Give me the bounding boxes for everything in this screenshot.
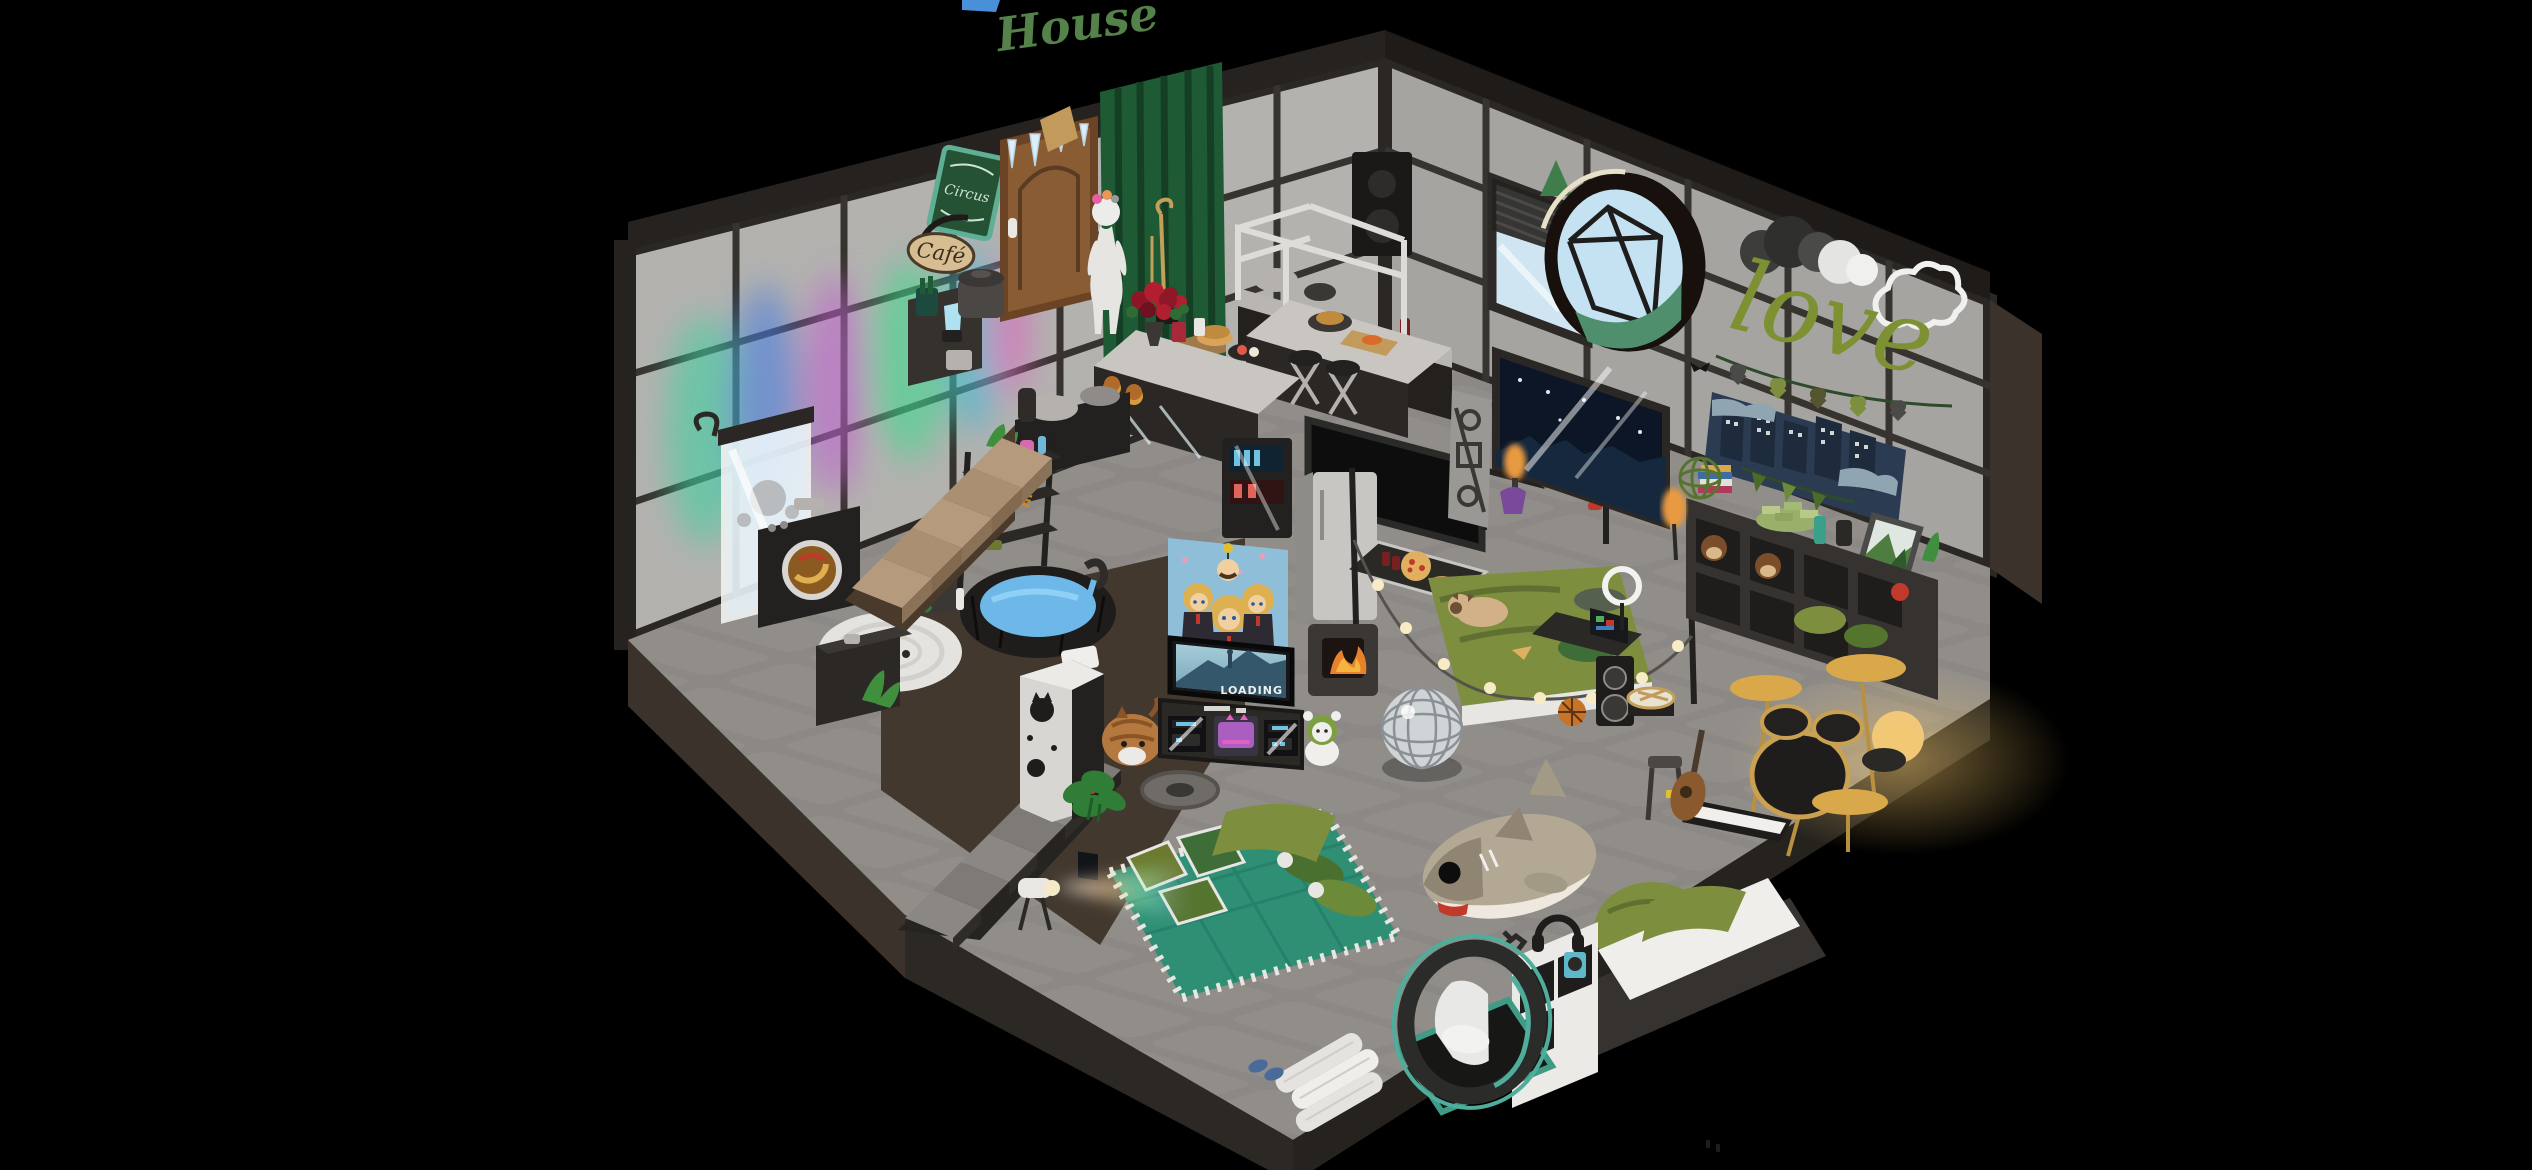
front-door[interactable] [1000, 106, 1098, 322]
drinks-fridge[interactable] [1222, 438, 1292, 538]
chalkboard-sign[interactable]: Circus [928, 146, 1006, 239]
game-console-right[interactable] [1264, 720, 1298, 756]
red-hood-plush [1891, 583, 1909, 601]
disco-ball[interactable] [1382, 688, 1462, 782]
tv-loading-text: LOADING [1220, 684, 1283, 697]
faucet [844, 634, 860, 644]
wood-stove[interactable] [1308, 624, 1378, 696]
grill-hood [1254, 268, 1298, 292]
cymbal [1826, 654, 1906, 682]
game-viewport: Circus Café [0, 0, 2532, 1170]
cymbal [1730, 675, 1802, 701]
tv-stand[interactable] [1160, 700, 1302, 768]
nook-cushion [1794, 606, 1846, 634]
tv[interactable]: LOADING [1170, 638, 1292, 704]
game-console-left[interactable] [1168, 716, 1206, 752]
popcorn-cup [1172, 322, 1186, 342]
espresso-machine [946, 350, 972, 370]
cymbal [1812, 789, 1888, 815]
basketball[interactable] [1558, 698, 1586, 726]
trash-can[interactable] [958, 269, 1004, 318]
manhole-decal[interactable] [1142, 772, 1218, 808]
wine-bucket [916, 288, 938, 316]
banner-tapestry[interactable] [1448, 390, 1492, 528]
snare-drum[interactable] [1628, 688, 1674, 716]
isometric-house-scene: Circus Café [0, 0, 2532, 1170]
detergent-box [794, 498, 824, 510]
right-wall-end [1990, 300, 2042, 604]
soap-bottle [956, 588, 964, 610]
smoker [1018, 388, 1036, 422]
fridge[interactable] [1295, 472, 1377, 624]
energy-drink [1814, 516, 1826, 544]
arcade-screen [1078, 852, 1098, 881]
band-poster[interactable] [1168, 538, 1288, 652]
game-console-center[interactable] [1214, 714, 1258, 756]
wall-corner-post [614, 240, 636, 650]
drum-throne [1862, 748, 1906, 772]
coffee-tumbler [1836, 520, 1852, 546]
house-title: House [991, 0, 1162, 62]
